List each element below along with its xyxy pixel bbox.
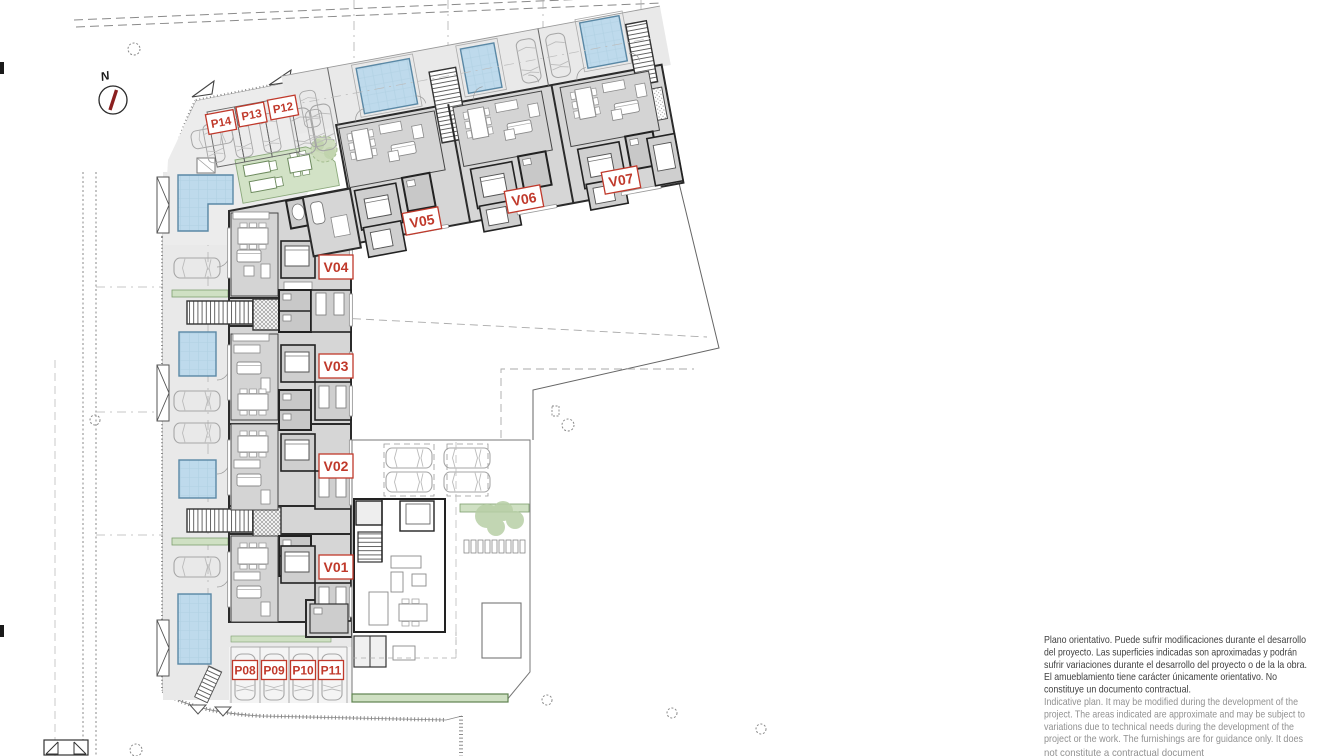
svg-text:variations due to technical ne: variations due to technical needs during… <box>1044 722 1294 733</box>
svg-text:P10: P10 <box>292 664 314 678</box>
svg-text:project. The areas indicated a: project. The areas indicated are approxi… <box>1044 709 1305 720</box>
svg-text:sufrir variaciones durante el: sufrir variaciones durante el desarrollo… <box>1044 660 1307 671</box>
svg-text:not constitute a contractual d: not constitute a contractual document <box>1044 748 1204 756</box>
svg-text:V02: V02 <box>324 458 349 474</box>
svg-text:V04: V04 <box>324 259 349 275</box>
svg-text:El amueblamiento tiene carácte: El amueblamiento tiene carácter únicamen… <box>1044 672 1277 683</box>
svg-text:del proyecto. Las superficies: del proyecto. Las superficies indicadas … <box>1044 647 1297 658</box>
svg-text:project or the work. The furni: project or the work. The furnishings are… <box>1044 734 1303 745</box>
svg-text:Indicative plan. It may be mod: Indicative plan. It may be modified duri… <box>1044 697 1298 708</box>
svg-text:P09: P09 <box>263 664 285 678</box>
svg-text:V03: V03 <box>324 358 349 374</box>
svg-text:P11: P11 <box>321 664 342 678</box>
svg-text:constituye un documento contra: constituye un documento contractual. <box>1044 685 1191 696</box>
svg-text:P08: P08 <box>234 664 256 678</box>
svg-text:Plano orientativo. Puede sufri: Plano orientativo. Puede sufrir modifica… <box>1044 635 1306 646</box>
svg-text:V01: V01 <box>324 559 349 575</box>
